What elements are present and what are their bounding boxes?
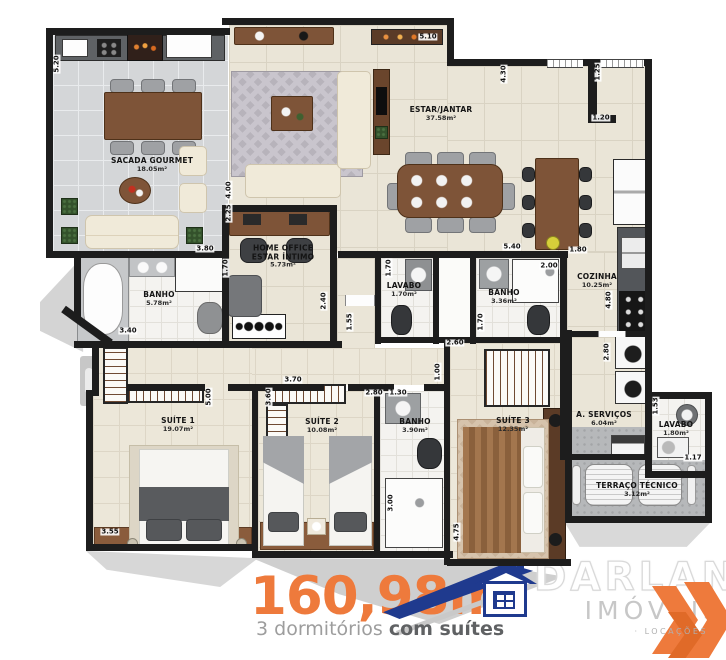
dimension-label: 4.00: [226, 180, 233, 199]
dimension-label: 4.75: [454, 522, 461, 541]
dimension-label: 1.53: [653, 396, 660, 415]
dimension-label: 3.70: [283, 377, 302, 384]
wall: [560, 454, 652, 460]
bar-stool: [579, 195, 592, 210]
wall: [447, 559, 571, 566]
pillow: [523, 446, 543, 488]
room-label-banho-social: BANHO3.36m²: [488, 289, 519, 305]
chair: [110, 79, 134, 93]
wall: [74, 251, 81, 317]
dimension-label: 1.70: [223, 258, 230, 277]
banho-suite2-toilet: [417, 438, 442, 469]
dimension-label: 5.00: [206, 387, 213, 406]
bed-blanket-drape: [463, 427, 521, 553]
pillow: [186, 519, 222, 541]
room-label-home-office: HOME OFFICEESTAR ÍNTIMO5.73m²: [252, 245, 314, 270]
chair: [405, 217, 432, 233]
slab-shadow-bottom-left: [86, 551, 258, 587]
window: [600, 59, 644, 68]
wall: [626, 331, 652, 337]
pillow: [146, 519, 182, 541]
shoe-cabinet: [232, 314, 286, 339]
subtitle-bold: com suítes: [389, 618, 504, 640]
door-servicos: [598, 331, 626, 337]
dimension-label: 1.25: [595, 62, 602, 81]
sacada-sofa: [85, 215, 179, 249]
subtitle-prefix: 3 dormitórios: [256, 618, 389, 640]
chair: [469, 217, 496, 233]
room-label-estar-jantar: ESTAR/JANTAR37.58m²: [410, 106, 473, 122]
wall: [375, 337, 567, 343]
bar-stool: [579, 223, 592, 238]
banho-suite2-shower: [385, 478, 443, 548]
room-label-banho-suite2: BANHO3.90m²: [399, 418, 430, 434]
banho-social-sink: [479, 259, 509, 289]
wall: [565, 516, 712, 523]
dimension-label: 3.55: [100, 529, 119, 536]
chair: [141, 79, 165, 93]
room-label-lavabo-1: LAVABO1.70m²: [387, 282, 421, 298]
dimension-label: 2.80: [364, 390, 383, 397]
floor-hall-closet: [439, 258, 470, 338]
dimension-label: 2.60: [445, 340, 464, 347]
subtitle-text: 3 dormitórios com suítes: [256, 618, 504, 640]
dimension-label: 3.60: [266, 387, 273, 406]
banho-social-toilet: [527, 305, 550, 335]
dimension-label: 3.40: [118, 328, 137, 335]
lavabo1-toilet: [391, 305, 412, 335]
sofa-chaise: [337, 71, 371, 169]
sacada-cabinet: [166, 32, 212, 58]
tv: [376, 87, 387, 115]
closet-suite3: [484, 349, 550, 407]
dimension-label: 4.80: [606, 290, 613, 309]
sofa: [245, 164, 341, 198]
bar-counter: [535, 158, 579, 250]
dimension-label: 5.20: [54, 54, 61, 73]
lamp: [549, 533, 562, 546]
bed-blanket: [139, 487, 229, 521]
wall: [433, 251, 439, 344]
plant: [61, 227, 78, 244]
wall: [444, 343, 450, 565]
wall: [252, 551, 453, 558]
dimension-label: 5.40: [502, 244, 521, 251]
wall: [92, 341, 99, 396]
bar-stool: [522, 195, 535, 210]
dimension-label: 2.25: [226, 203, 233, 222]
dimension-label: 1.30: [388, 390, 407, 397]
armchair-gray: [227, 275, 262, 317]
wall: [222, 205, 337, 212]
window: [547, 59, 583, 68]
plant: [186, 227, 203, 244]
plant: [61, 198, 78, 215]
door-hall: [345, 295, 375, 306]
wall: [86, 544, 258, 551]
wall: [375, 251, 381, 344]
pillow: [268, 512, 299, 532]
dimension-label: 2.80: [604, 342, 611, 361]
wall: [252, 384, 258, 557]
flower-vase: [546, 236, 560, 250]
wall: [374, 384, 380, 557]
wall: [86, 390, 93, 551]
chair: [437, 217, 464, 233]
room-label-suite-3: SUÍTE 312.35m²: [496, 417, 530, 433]
chair: [141, 141, 165, 155]
room-label-sacada-gourmet: SACADA GOURMET18.05m²: [111, 157, 193, 173]
dimension-label: 1.70: [386, 258, 393, 277]
toilet: [197, 302, 223, 334]
monitor: [289, 214, 307, 225]
room-label-suite-1: SUÍTE 119.07m²: [161, 417, 195, 433]
house-windows: [493, 591, 515, 609]
armchair: [179, 183, 207, 213]
pillow: [523, 492, 543, 534]
dimension-label: 1.20: [591, 115, 610, 122]
monitor: [243, 214, 261, 225]
bar-stool: [522, 223, 535, 238]
dimension-label: 2.40: [321, 291, 328, 310]
bar-stool: [579, 167, 592, 182]
dimension-label: 1.80: [568, 247, 587, 254]
wall: [560, 251, 567, 337]
dimension-label: 1.00: [435, 362, 442, 381]
sacada-grill: [127, 33, 163, 61]
chair: [110, 141, 134, 155]
wall: [645, 59, 652, 399]
sacada-dining-table: [104, 92, 202, 140]
wall: [74, 341, 342, 348]
sacada-coffee-table: [119, 177, 151, 204]
dimension-label: 4.30: [501, 64, 508, 83]
wall: [645, 471, 705, 478]
dimension-label: 1.70: [478, 312, 485, 331]
tv-console: [234, 27, 334, 45]
room-label-terraco-tecnico: TERRAÇO TÉCNICO3.12m²: [596, 482, 678, 498]
wall: [705, 392, 712, 523]
room-label-cozinha: COZINHA10.25m²: [577, 273, 617, 289]
brand-tagline: · LOCAÇÕES: [520, 627, 708, 636]
dimension-label: 1.17: [683, 455, 702, 462]
slab-shadow-bottom-right: [565, 523, 710, 549]
dimension-label: 3.80: [195, 246, 214, 253]
room-label-banho-suite1: BANHO5.78m²: [143, 291, 174, 307]
pillow: [334, 512, 367, 532]
chair: [172, 79, 196, 93]
floor-plan-page: SACADA GOURMET18.05m²ESTAR/JANTAR37.58m²…: [0, 0, 726, 660]
room-label-area-servicos: A. SERVIÇOS6.04m²: [576, 411, 632, 427]
dining-table: [397, 164, 503, 218]
plant: [375, 126, 388, 139]
bar-stool: [522, 167, 535, 182]
dimension-label: 5.10: [418, 34, 437, 41]
terraco-panel: [572, 465, 581, 505]
wall: [470, 251, 476, 344]
fridge: [613, 159, 648, 225]
wall: [46, 28, 230, 35]
wall: [560, 331, 567, 460]
dimension-label: 1.55: [347, 312, 354, 331]
sacada-cooktop: [97, 39, 121, 57]
wall: [127, 384, 205, 391]
nightstand: [307, 518, 326, 535]
closet-suite1: [103, 347, 128, 404]
sacada-sink: [62, 39, 88, 57]
coffee-table: [271, 96, 313, 131]
wall: [222, 18, 454, 25]
dimension-label: 3.00: [388, 493, 395, 512]
dimension-label: 2.00: [539, 263, 558, 270]
room-label-lavabo-2: LAVABO1.80m²: [659, 421, 693, 437]
room-label-suite-2: SUÍTE 210.08m²: [305, 418, 339, 434]
wall: [338, 251, 568, 258]
wall: [330, 212, 337, 348]
double-sink: [129, 256, 175, 277]
